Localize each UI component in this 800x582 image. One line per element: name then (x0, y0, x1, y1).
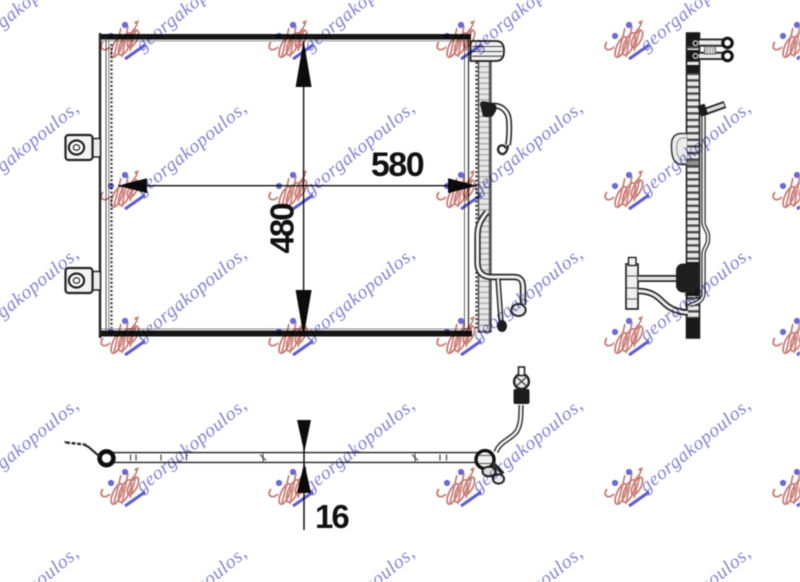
svg-text:16: 16 (315, 498, 349, 535)
svg-text:480: 480 (264, 204, 301, 254)
svg-text:580: 580 (371, 146, 424, 184)
